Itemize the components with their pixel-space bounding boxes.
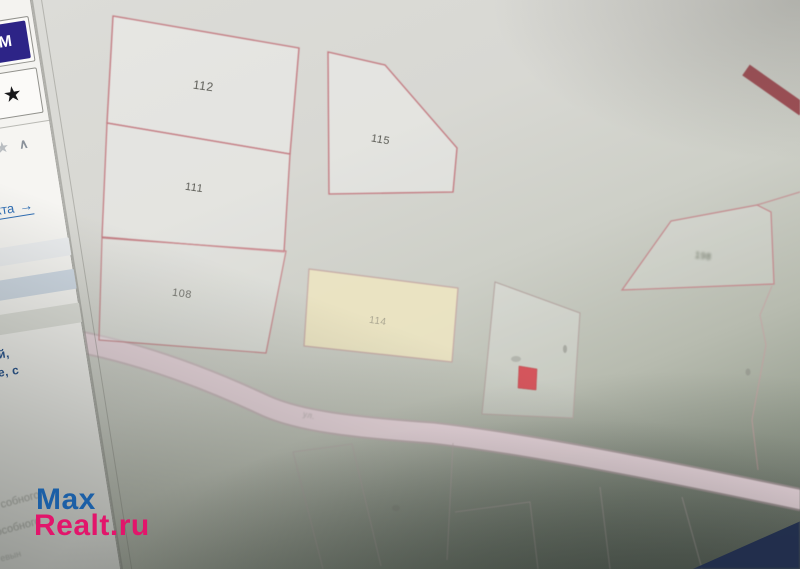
maxrealt-watermark: Max Realt.ru [36,487,150,539]
road-band [80,342,800,500]
parcel-108[interactable] [99,238,286,353]
clipped-text-line: е, с [0,363,20,380]
favorite-button[interactable]: ★ [0,67,44,121]
boundary-line [752,286,772,470]
building-footprint[interactable] [518,366,537,390]
photographed-monitor-screen: 112 111 108 115 114 198 ул. М ★ ★ ∧ кта … [0,0,800,569]
star-icon: ★ [0,138,10,158]
object-link-label: кта [0,200,15,218]
parcel-198[interactable] [622,205,774,290]
boundary-line [757,192,800,205]
parcel-115[interactable] [328,52,457,194]
parcel-label-108: 108 [171,287,192,302]
object-link[interactable]: кта → [0,197,34,221]
star-icon: ★ [1,80,24,108]
selected-road-segment[interactable] [746,70,800,110]
parcel-label-114: 114 [368,315,387,328]
watermark-line2: Realt.ru [34,513,150,539]
map-layer-button[interactable]: М [0,16,36,70]
parcel-label-198: 198 [694,250,712,262]
arrow-right-icon: → [18,197,34,215]
cadastral-map[interactable] [0,0,800,569]
map-layer-button-label: М [0,20,31,65]
parcel-label-112: 112 [192,78,214,95]
list-row-bar [0,302,82,350]
chevron-up-icon[interactable]: ∧ [18,135,30,152]
panel-header: ★ ∧ [0,135,30,158]
parcel-label-111: 111 [184,181,204,195]
clipped-text-line: й, [0,346,10,362]
